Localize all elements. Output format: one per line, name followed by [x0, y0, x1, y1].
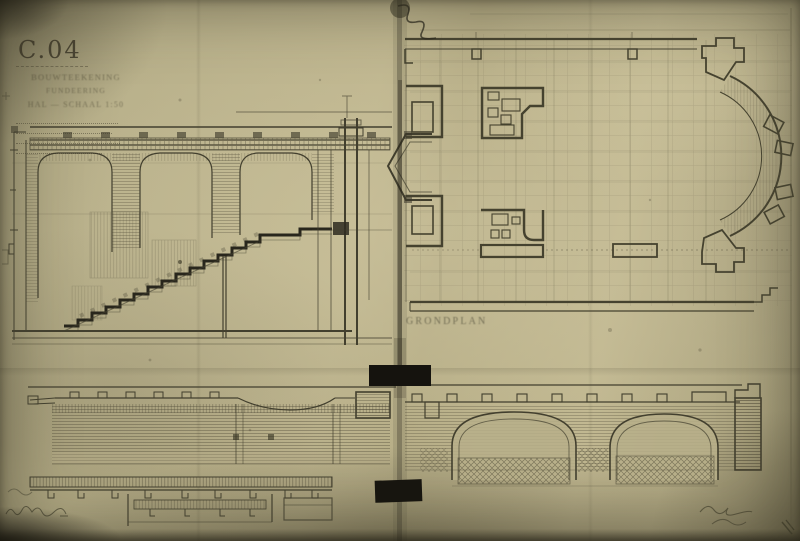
left-tower-profile [9, 126, 26, 340]
stair-section [64, 212, 332, 338]
section-right-wall [312, 96, 392, 345]
title-block: C.04 BOUWTEEKENING FUNDEERING HAL — SCHA… [16, 36, 136, 154]
title-line-2: FUNDEERING [16, 85, 136, 96]
drawing-number: C.04 [16, 36, 88, 67]
tape-top [369, 365, 431, 386]
title-small-row [16, 147, 102, 154]
title-line-3: HAL — SCHAAL 1:50 [16, 99, 136, 110]
title-line-1: BOUWTEEKENING [16, 72, 136, 83]
tape-bottom [375, 479, 423, 503]
elevation-strip-left [28, 387, 396, 464]
corner-shadow [0, 0, 70, 40]
margin-ticks [2, 92, 10, 264]
title-small-row [16, 127, 112, 134]
title-small-row [16, 117, 118, 124]
floor-plan [404, 14, 793, 311]
signature-right [700, 506, 752, 515]
arch-opening [240, 153, 312, 235]
arch-opening [140, 153, 212, 248]
title-small-row [16, 137, 120, 144]
elevation-right-pier [735, 384, 761, 470]
drawing-sheet: C.04 BOUWTEEKENING FUNDEERING HAL — SCHA… [0, 0, 800, 541]
plan-label: GRONDPLAN [406, 316, 487, 327]
elevation-strip-right [400, 384, 761, 486]
edge-shadow [0, 529, 800, 541]
